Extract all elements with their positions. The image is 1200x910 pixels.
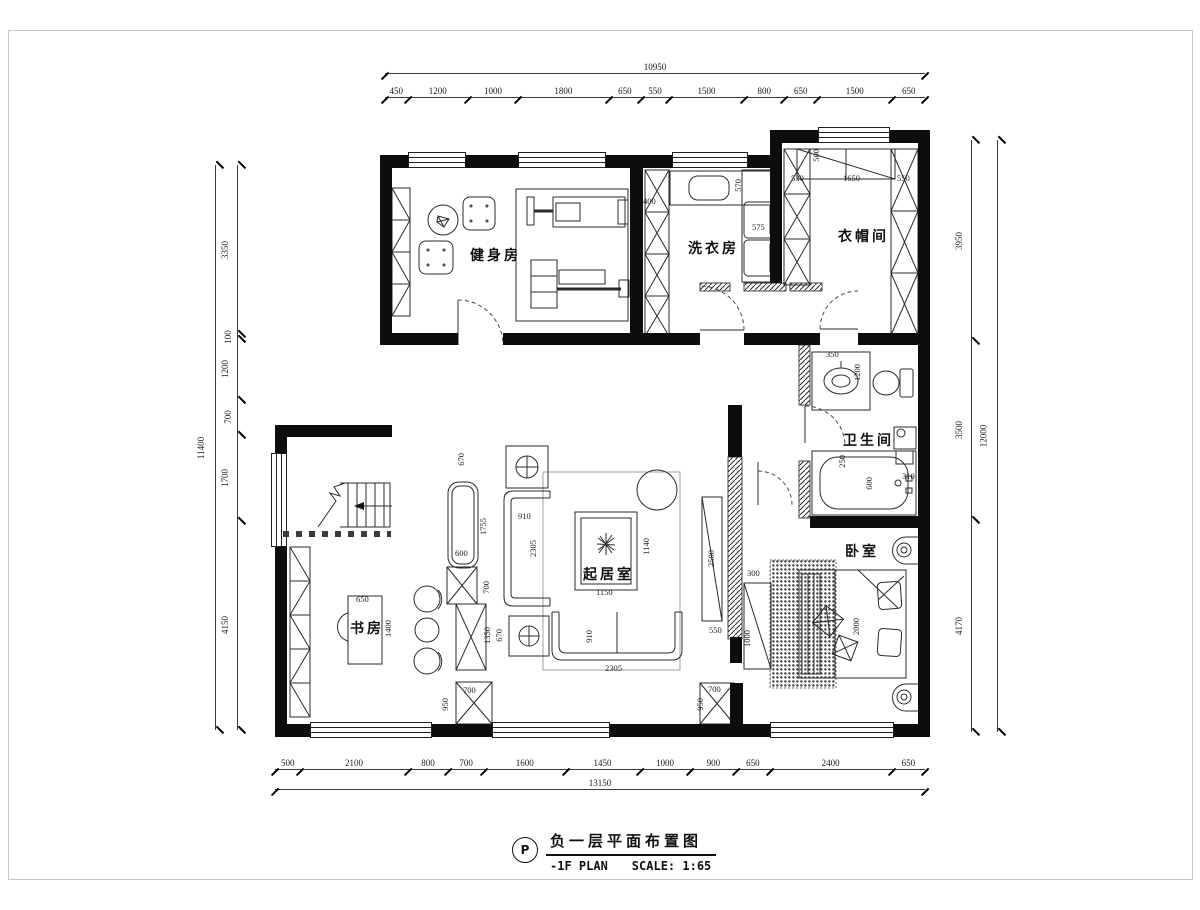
gym-equipment-zone <box>516 189 628 321</box>
interior-dim: 350 <box>826 349 839 359</box>
bedroom-cabinet-short <box>744 583 771 669</box>
interior-dim: 1140 <box>641 538 651 555</box>
study-chair-1 <box>414 586 442 612</box>
x-cabinet-1 <box>447 567 477 604</box>
room-label-cloakroom: 衣帽间 <box>838 226 889 246</box>
treadmill <box>527 197 628 227</box>
room-label-living: 起居室 <box>583 564 634 584</box>
interior-dim: 2305 <box>528 540 538 557</box>
study-chair-2 <box>415 618 439 642</box>
wall <box>643 333 700 345</box>
interior-dim: 575 <box>752 222 765 232</box>
gym-door-arc <box>458 300 503 345</box>
interior-dim: 1200 <box>852 364 862 381</box>
room-label-bedroom: 卧室 <box>845 541 879 561</box>
gym-armchair-1 <box>463 197 495 230</box>
bedroom-rug <box>770 560 836 688</box>
gym-shelf <box>392 188 410 316</box>
dim-chain-top-total: 10950 <box>385 62 925 74</box>
toilet <box>873 369 913 397</box>
interior-dim: 700 <box>463 685 476 695</box>
wall <box>728 405 742 457</box>
interior-dim: 1000 <box>742 630 752 647</box>
furniture-layer <box>0 0 1200 910</box>
gym-round-table <box>428 205 458 235</box>
plan-title-en: -1F PLAN <box>550 859 608 873</box>
wall <box>744 333 820 345</box>
laundry-cabinet <box>645 170 669 336</box>
title-block: P 负一层平面布置图 -1F PLAN SCALE: 1:65 <box>512 830 716 873</box>
room-label-bathroom: 卫生间 <box>843 430 894 450</box>
dim-chain-right-total: 12000 <box>984 140 998 732</box>
interior-dim: 400 <box>643 196 656 206</box>
dim-chain-top: 45012001000180065055015008006501500650 <box>385 84 925 98</box>
window <box>408 152 466 168</box>
dashed-beam-line <box>283 531 391 537</box>
window <box>310 722 432 738</box>
gym-armchair-2 <box>419 241 453 274</box>
plan-scale: SCALE: 1:65 <box>632 859 711 873</box>
wall <box>918 130 930 737</box>
dim-chain-right: 395035004170 <box>958 140 972 732</box>
interior-dim: 310 <box>902 471 915 481</box>
nightstand-2 <box>893 684 918 711</box>
wall <box>770 168 782 283</box>
nightstand-1 <box>893 537 918 564</box>
interior-dim: 1755 <box>478 518 488 535</box>
plan-bubble: P <box>512 837 538 863</box>
dim-chain-left-total: 11400 <box>202 165 216 730</box>
bedroom-door-arc <box>758 462 792 505</box>
interior-dim: 2000 <box>851 618 861 635</box>
interior-dim: 950 <box>440 698 450 711</box>
interior-dim: 670 <box>494 629 504 642</box>
dim-chain-left: 3350100120070017004150 <box>224 165 238 730</box>
interior-dim: 910 <box>584 630 594 643</box>
window <box>492 722 610 738</box>
interior-dim: 250 <box>837 455 847 468</box>
room-label-study: 书房 <box>350 618 384 638</box>
interior-dim: 700 <box>708 684 721 694</box>
side-table-1 <box>506 446 548 488</box>
plant-icon <box>597 533 615 555</box>
cloakroom-door-arc <box>820 291 858 329</box>
wall <box>630 155 643 345</box>
interior-dim: 950 <box>695 698 705 711</box>
wall <box>503 333 643 345</box>
interior-dim: 600 <box>455 548 468 558</box>
wall <box>810 516 918 528</box>
floor-plan-sheet: 健身房 洗衣房 衣帽间 卫生间 卧室 起居室 书房 10950 45012001… <box>0 0 1200 910</box>
window <box>518 152 606 168</box>
laundry-sink <box>670 171 777 205</box>
staircase <box>318 483 390 527</box>
room-label-laundry: 洗衣房 <box>688 238 739 258</box>
interior-dim: 600 <box>864 477 874 490</box>
study-chair-3 <box>414 648 442 674</box>
interior-dim: 670 <box>456 453 466 466</box>
bathroom-door-arc <box>805 406 845 446</box>
interior-dim: 300 <box>747 568 760 578</box>
interior-dim: 650 <box>356 594 369 604</box>
interior-dim: 1350 <box>482 627 492 644</box>
study-bookshelf <box>290 547 310 717</box>
floor-lamp-circle <box>637 470 677 510</box>
interior-dim: 2500 <box>706 550 716 567</box>
room-label-gym: 健身房 <box>470 245 521 265</box>
sofa-horizontal <box>552 612 682 660</box>
interior-dim: 1150 <box>596 587 613 597</box>
window <box>818 127 890 143</box>
wall <box>380 333 458 345</box>
wall <box>730 683 743 724</box>
laundry-door-arc <box>700 286 744 330</box>
interior-dim: 1650 <box>843 173 860 183</box>
interior-dim: 500 <box>811 149 821 162</box>
bathroom-vanity <box>812 352 870 410</box>
interior-dim: 570 <box>733 179 743 192</box>
interior-dim: 530 <box>791 173 804 183</box>
wall <box>730 637 742 663</box>
interior-dim: 1400 <box>383 620 393 637</box>
window <box>770 722 894 738</box>
wall <box>275 425 392 437</box>
dim-chain-bottom: 50021008007001600145010009006502400650 <box>275 756 925 770</box>
window <box>672 152 748 168</box>
interior-dim: 700 <box>481 581 491 594</box>
wall <box>380 155 392 345</box>
weight-bench <box>531 260 629 308</box>
stair-arrow <box>354 502 392 510</box>
interior-dim: 550 <box>709 625 722 635</box>
interior-dim: 2305 <box>605 663 622 673</box>
interior-dim: 910 <box>518 511 531 521</box>
wall <box>858 333 930 345</box>
plan-title-cn: 负一层平面布置图 <box>546 830 716 856</box>
dim-chain-bottom-total: 13150 <box>275 776 925 790</box>
interior-dim: 550 <box>897 173 910 183</box>
